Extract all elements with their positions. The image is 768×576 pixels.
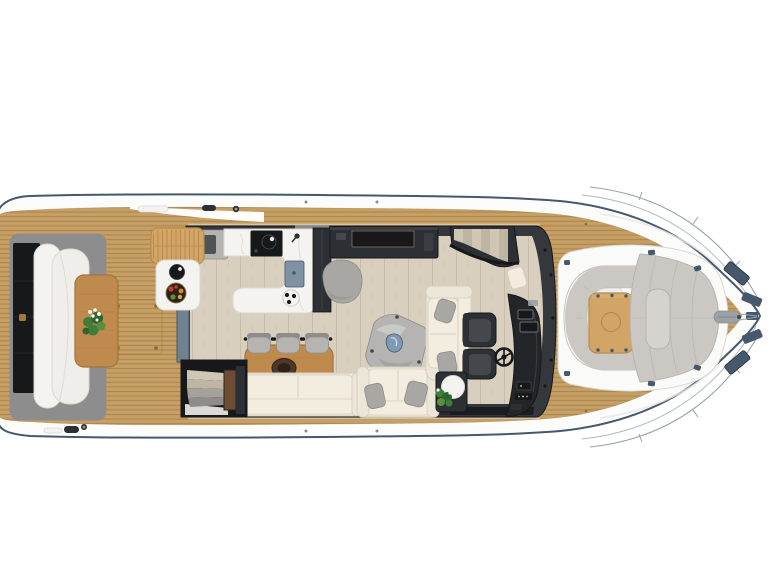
helm-display: [518, 310, 533, 319]
blue-throw: [386, 334, 402, 352]
dining-chair: [302, 333, 333, 353]
foredeck-pod: [558, 245, 728, 391]
armchair-dark: [463, 349, 496, 379]
step-tray: [44, 428, 62, 433]
aft-stairs: [181, 360, 247, 417]
cooking-pot: [262, 235, 276, 249]
cleat: [202, 205, 216, 211]
step-tray: [138, 206, 168, 212]
yacht-floorplan-stage: Motor yacht main-deck floor plan — top-d…: [0, 0, 768, 576]
serving-bowl: [169, 264, 184, 279]
side-table-group: [436, 372, 468, 412]
cleat: [64, 426, 79, 433]
stair-pillar: [224, 370, 236, 410]
brass-latch: [19, 314, 26, 321]
dining-chair: [244, 333, 275, 353]
tv-screen: [352, 231, 414, 247]
armchair-dark: [463, 313, 496, 347]
helm-display: [520, 322, 538, 332]
burner-plate: [283, 290, 299, 306]
throttle: [517, 382, 531, 390]
dining-chair: [273, 333, 304, 353]
bow-table: [589, 293, 633, 353]
outdoor-bar-group: [151, 228, 204, 310]
long-sofa: [232, 373, 364, 416]
yacht-floorplan-render: Motor yacht main-deck floor plan — top-d…: [0, 0, 768, 576]
pouf: [323, 260, 362, 303]
aft-table-group: [75, 275, 118, 367]
bolster-pillow: [646, 289, 670, 349]
fruit-plate: [166, 283, 186, 303]
